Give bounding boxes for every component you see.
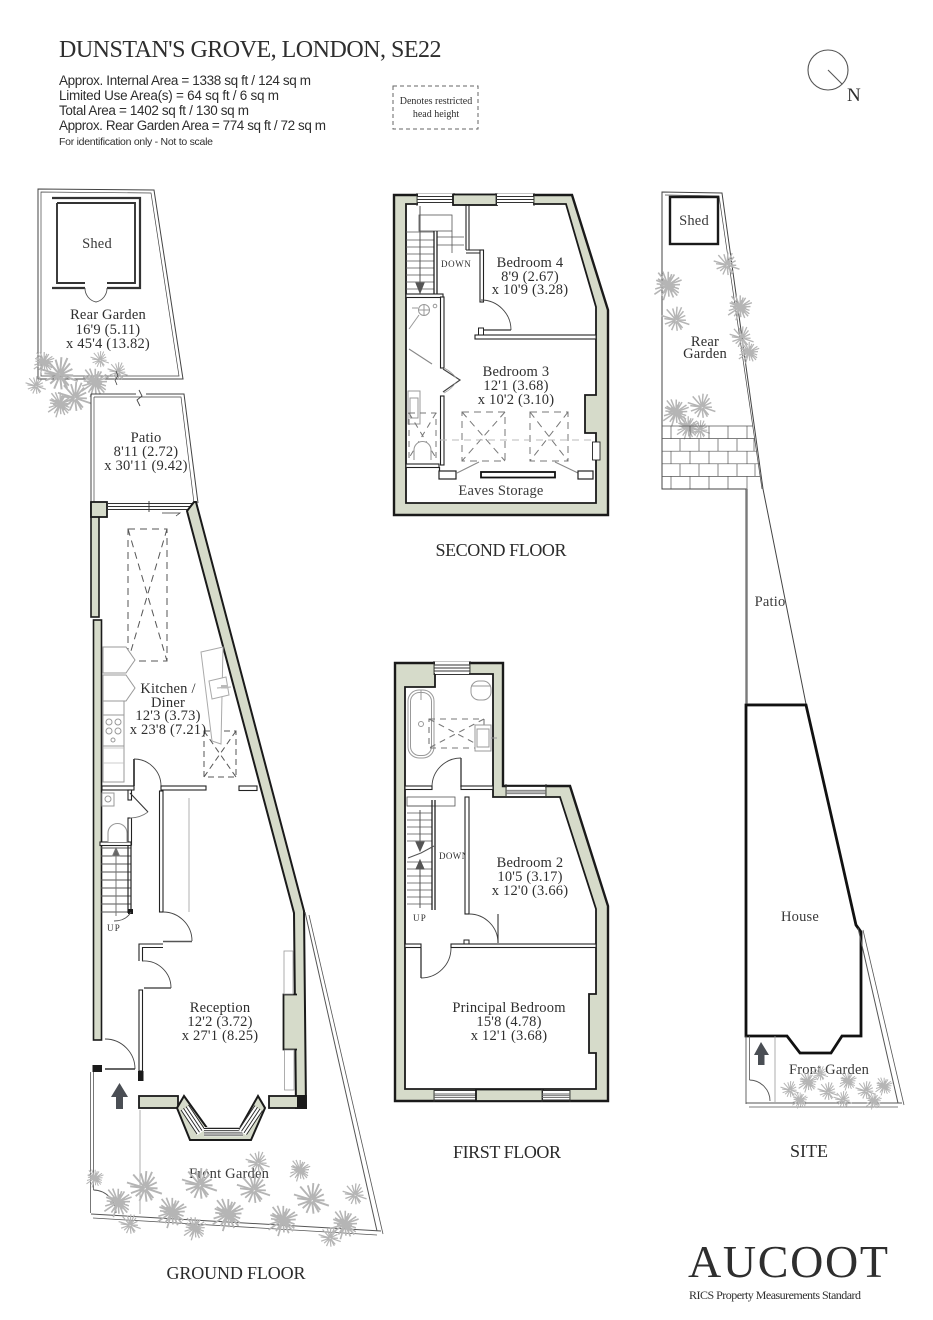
svg-text:SITE: SITE <box>790 1141 830 1161</box>
svg-text:UP: UP <box>413 913 427 923</box>
svg-text:x 45'4 (13.82): x 45'4 (13.82) <box>66 336 150 352</box>
svg-text:AUCOOT: AUCOOT <box>688 1236 891 1287</box>
svg-text:x 23'8 (7.21): x 23'8 (7.21) <box>130 722 207 738</box>
svg-text:DOWN: DOWN <box>441 259 471 269</box>
svg-text:Patio: Patio <box>755 594 786 610</box>
svg-text:Shed: Shed <box>82 236 112 252</box>
svg-text:Garden: Garden <box>683 346 727 362</box>
svg-text:x 10'9 (3.28): x 10'9 (3.28) <box>492 282 569 298</box>
svg-text:x 10'2 (3.10): x 10'2 (3.10) <box>478 392 555 408</box>
svg-text:Limited Use Area(s) = 64 sq ft: Limited Use Area(s) = 64 sq ft / 6 sq m <box>59 88 279 103</box>
svg-text:x 12'0 (3.66): x 12'0 (3.66) <box>492 883 569 899</box>
svg-text:Eaves Storage: Eaves Storage <box>458 483 543 499</box>
svg-text:N: N <box>847 85 861 106</box>
svg-text:RICS Property Measurements Sta: RICS Property Measurements Standard <box>689 1288 861 1302</box>
svg-text:GROUND FLOOR: GROUND FLOOR <box>167 1263 308 1283</box>
svg-text:Shed: Shed <box>679 213 709 229</box>
svg-text:x 27'1 (8.25): x 27'1 (8.25) <box>182 1028 259 1044</box>
svg-text:House: House <box>781 909 819 925</box>
svg-text:FIRST FLOOR: FIRST FLOOR <box>453 1142 563 1162</box>
svg-text:For identification only - Not: For identification only - Not to scale <box>59 136 213 148</box>
svg-text:UP: UP <box>107 923 121 933</box>
svg-text:head height: head height <box>413 109 460 120</box>
svg-text:Total Area = 1402 sq ft / 130: Total Area = 1402 sq ft / 130 sq m <box>59 103 249 118</box>
svg-text:DOWN: DOWN <box>439 851 469 861</box>
svg-text:Front Garden: Front Garden <box>789 1062 870 1078</box>
svg-text:Denotes restricted: Denotes restricted <box>400 96 472 107</box>
svg-text:x 30'11 (9.42): x 30'11 (9.42) <box>104 458 187 474</box>
svg-text:x 12'1 (3.68): x 12'1 (3.68) <box>471 1028 548 1044</box>
svg-text:DUNSTAN'S GROVE, LONDON, SE22: DUNSTAN'S GROVE, LONDON, SE22 <box>59 37 442 63</box>
svg-text:Approx. Rear Garden Area = 77: Approx. Rear Garden Area = 774 sq ft / 7… <box>59 118 326 133</box>
svg-text:SECOND FLOOR: SECOND FLOOR <box>436 540 569 560</box>
svg-text:Approx. Internal Area = 1338 s: Approx. Internal Area = 1338 sq ft / 124… <box>59 73 311 88</box>
svg-text:Rear Garden: Rear Garden <box>70 307 146 323</box>
